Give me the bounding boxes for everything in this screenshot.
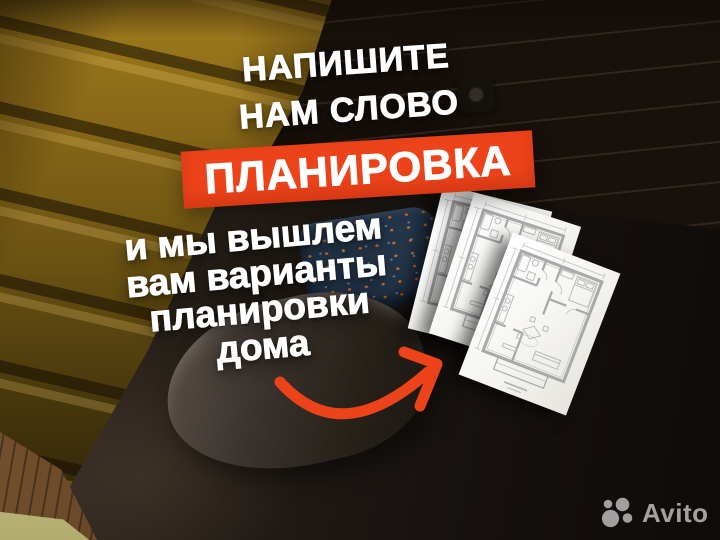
ad-image: НАПИШИТЕ НАМ СЛОВО ПЛАНИРОВКА и мы вышле… xyxy=(0,0,720,540)
avito-circles-icon xyxy=(600,496,637,530)
subtext: и мы вышлем вам варианты планировки дома xyxy=(87,205,428,379)
avito-watermark: Avito xyxy=(600,494,709,532)
avito-brand-label: Avito xyxy=(642,498,709,529)
